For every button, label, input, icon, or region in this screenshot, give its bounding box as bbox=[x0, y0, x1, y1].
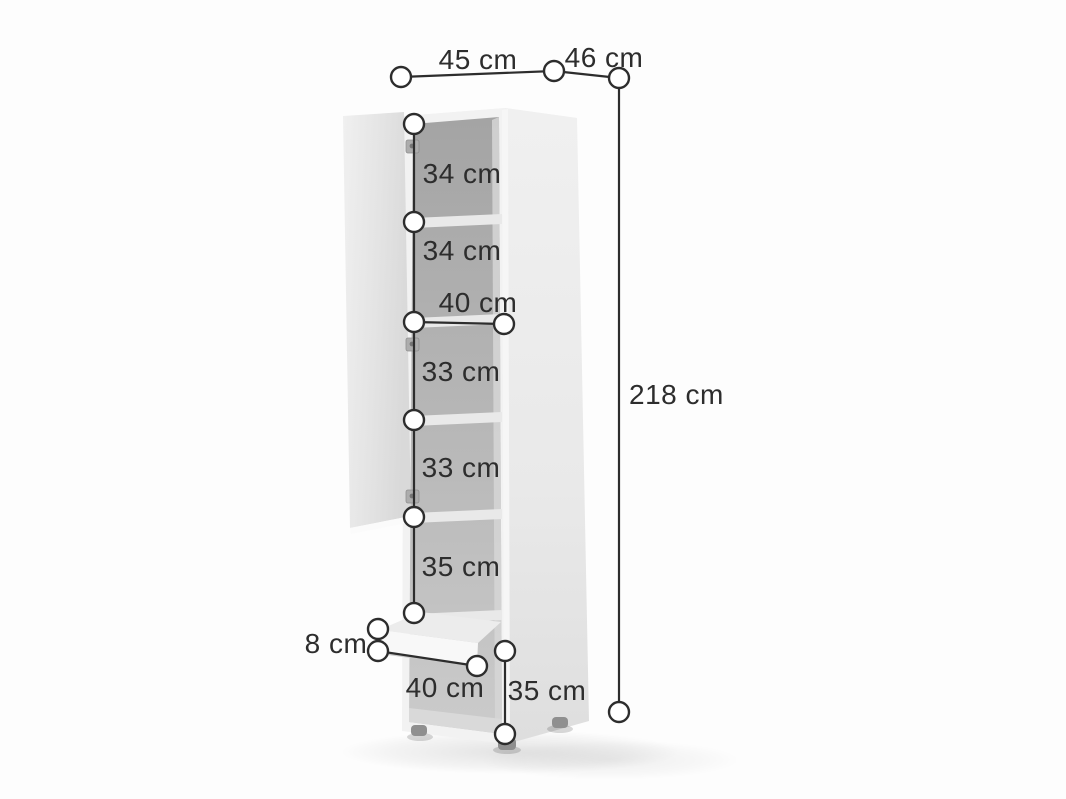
hinge-icon bbox=[406, 140, 419, 153]
dim-label-total-height: 218 cm bbox=[629, 379, 724, 410]
dimension-endpoint bbox=[404, 312, 424, 332]
dim-label-section-4: 33 cm bbox=[422, 452, 501, 483]
dim-label-top-depth: 46 cm bbox=[565, 42, 644, 73]
dimension-endpoint bbox=[404, 114, 424, 134]
hinge-icon bbox=[406, 490, 419, 503]
dim-label-section-5: 35 cm bbox=[422, 551, 501, 582]
dimension-endpoint bbox=[404, 603, 424, 623]
dimension-endpoint bbox=[544, 61, 564, 81]
dimension-endpoint bbox=[391, 67, 411, 87]
dim-label-section-2: 34 cm bbox=[423, 235, 502, 266]
dim-label-section-1: 34 cm bbox=[423, 158, 502, 189]
hinge-icon bbox=[406, 338, 419, 351]
cabinet-side-panel bbox=[505, 108, 589, 744]
dimension-endpoint bbox=[404, 212, 424, 232]
dimension-endpoint bbox=[368, 641, 388, 661]
cabinet-foot bbox=[411, 725, 427, 736]
dim-label-section-3: 33 cm bbox=[422, 356, 501, 387]
dimension-endpoint bbox=[404, 507, 424, 527]
dim-label-drawer-height: 8 cm bbox=[305, 628, 368, 659]
floor-shadow bbox=[480, 740, 740, 780]
dim-label-interior-width: 40 cm bbox=[439, 287, 518, 318]
diagram-canvas: 45 cm 46 cm 218 cm 34 cm 34 cm 40 cm 33 … bbox=[0, 0, 1066, 799]
dimension-endpoint bbox=[368, 619, 388, 639]
cabinet-dimension-diagram: 45 cm 46 cm 218 cm 34 cm 34 cm 40 cm 33 … bbox=[0, 0, 1066, 799]
dim-label-top-width: 45 cm bbox=[439, 44, 518, 75]
dimension-endpoint bbox=[609, 702, 629, 722]
dimension-endpoint bbox=[404, 410, 424, 430]
cabinet-foot bbox=[552, 717, 568, 728]
dimension-endpoint bbox=[495, 641, 515, 661]
cabinet-door bbox=[343, 112, 411, 528]
dim-label-bottom-height: 35 cm bbox=[508, 675, 587, 706]
dimension-endpoint bbox=[495, 724, 515, 744]
dim-label-bottom-width: 40 cm bbox=[406, 672, 485, 703]
